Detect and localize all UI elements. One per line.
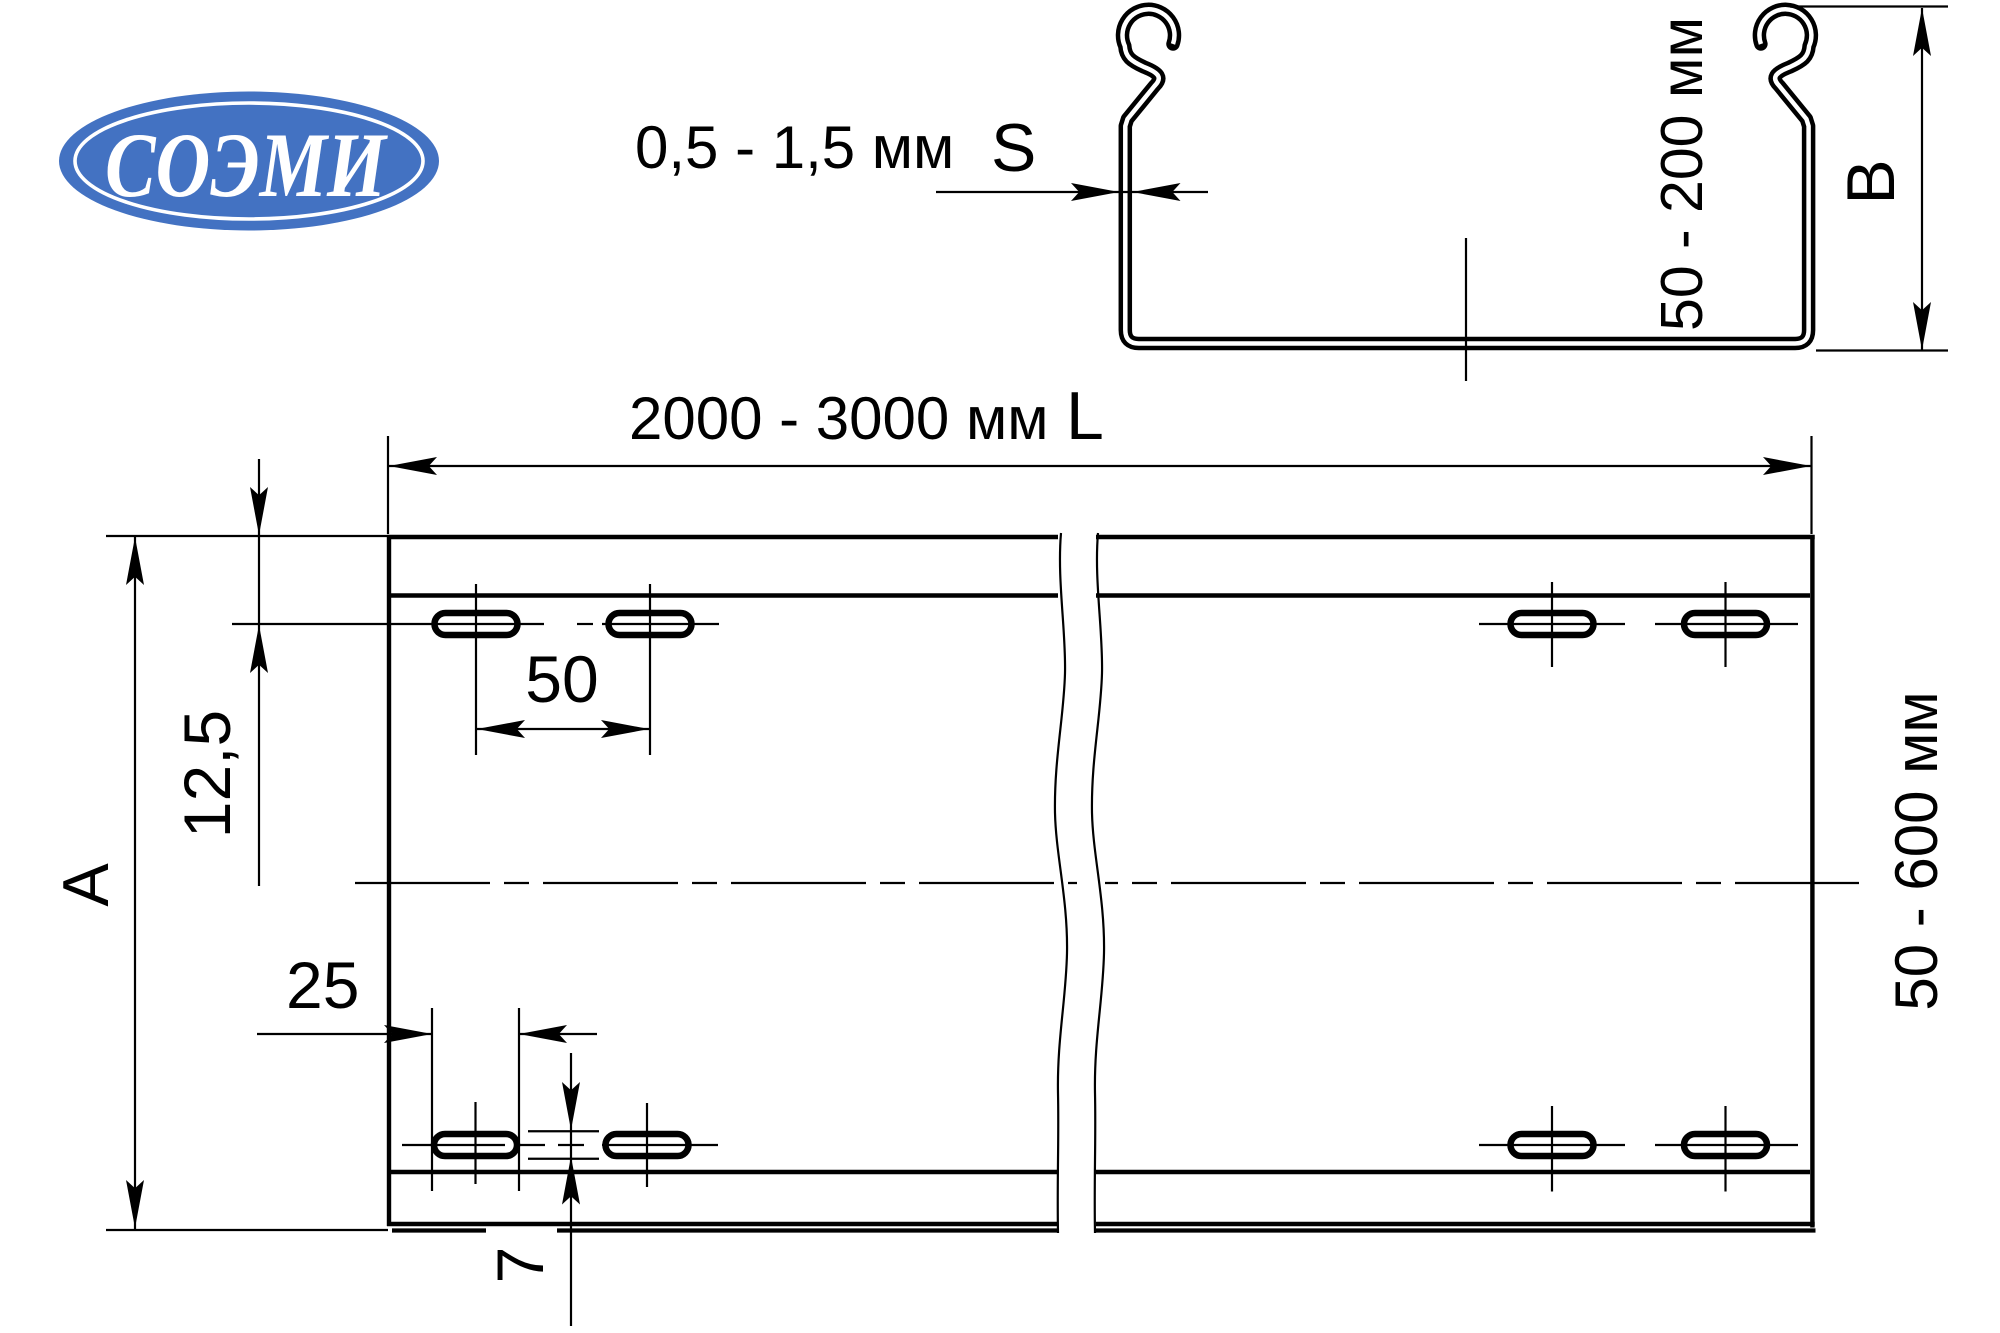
svg-text:СОЭМИ: СОЭМИ [105, 114, 388, 216]
svg-text:A: A [49, 863, 122, 907]
svg-text:12,5: 12,5 [170, 710, 244, 838]
svg-text:S: S [991, 110, 1036, 186]
svg-text:B: B [1833, 159, 1909, 204]
svg-text:7: 7 [483, 1247, 557, 1284]
svg-text:50 - 600 мм: 50 - 600 мм [1883, 691, 1950, 1010]
svg-text:50 - 200 мм: 50 - 200 мм [1649, 17, 1715, 331]
svg-text:0,5 - 1,5 мм: 0,5 - 1,5 мм [635, 114, 954, 181]
svg-text:L: L [1066, 378, 1104, 454]
svg-text:2000 - 3000 мм: 2000 - 3000 мм [629, 385, 1048, 452]
svg-text:50: 50 [525, 642, 598, 716]
svg-text:25: 25 [286, 948, 359, 1022]
